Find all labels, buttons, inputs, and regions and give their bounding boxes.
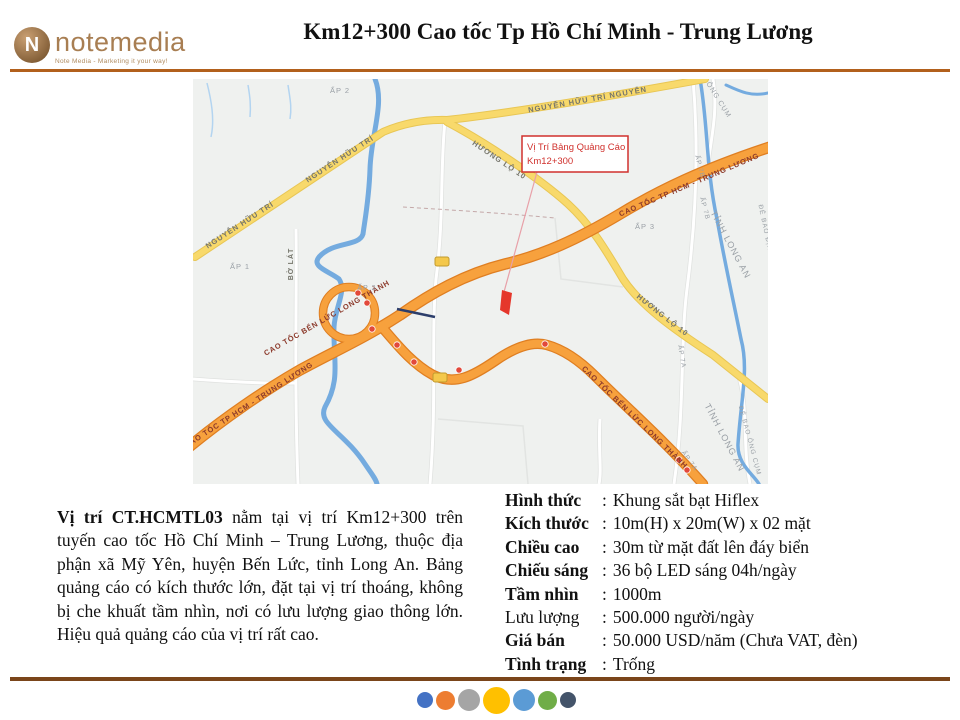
footer-dots bbox=[16, 686, 960, 714]
road-label-nguyen-huu-tri-top: NGUYỄN HỮU TRÍ NGUYỄN bbox=[527, 85, 647, 115]
creek-lines bbox=[207, 83, 291, 137]
spec-row: Kích thước:10m(H) x 20m(W) x 02 mặt bbox=[505, 512, 917, 535]
spec-colon: : bbox=[602, 536, 607, 559]
spec-value: 36 bộ LED sáng 04h/ngày bbox=[613, 559, 797, 582]
spec-colon: : bbox=[602, 512, 607, 535]
spec-row: Hình thức:Khung sắt bạt Hiflex bbox=[505, 489, 917, 512]
brand-logo: N notemedia Note Media - Marketing it yo… bbox=[14, 27, 186, 66]
highway-ben-luc-casing bbox=[381, 326, 703, 484]
spec-value: 30m từ mặt đất lên đáy biển bbox=[613, 536, 809, 559]
spec-value: Trống bbox=[613, 653, 655, 676]
location-map: NGUYỄN HỮU TRÍ NGUYỄN HỮU TRÍ NGUYỄN HỮU… bbox=[193, 79, 768, 484]
spec-label: Hình thức bbox=[505, 489, 602, 512]
location-code: Vị trí CT.HCMTL03 bbox=[57, 507, 223, 527]
road-label-bo-lat: BỜ LÁT bbox=[286, 248, 295, 281]
logo-text: notemedia Note Media - Marketing it your… bbox=[55, 27, 186, 66]
spec-value: 1000m bbox=[613, 583, 662, 606]
footer-dot bbox=[417, 692, 433, 708]
spec-row: Giá bán:50.000 USD/năm (Chưa VAT, đèn) bbox=[505, 629, 917, 652]
map-svg: NGUYỄN HỮU TRÍ NGUYỄN HỮU TRÍ NGUYỄN HỮU… bbox=[193, 79, 768, 484]
boundary-dashed-line bbox=[403, 207, 555, 218]
spec-colon: : bbox=[602, 489, 607, 512]
spec-value: 500.000 người/ngày bbox=[613, 606, 754, 629]
spec-label: Chiếu sáng bbox=[505, 559, 602, 582]
notemedia-monogram-icon: N bbox=[14, 27, 50, 63]
spec-list: Hình thức:Khung sắt bạt Hiflex Kích thướ… bbox=[505, 489, 917, 676]
billboard-marker bbox=[500, 290, 512, 315]
footer-dot bbox=[458, 689, 480, 711]
brand-tagline: Note Media - Marketing it your way! bbox=[55, 59, 186, 66]
footer-dot bbox=[513, 689, 535, 711]
spec-colon: : bbox=[602, 606, 607, 629]
road-label-huong-lo-10-2: HƯƠNG LỘ 10 bbox=[635, 292, 690, 338]
callout-line2: Km12+300 bbox=[527, 156, 573, 167]
spec-label: Lưu lượng bbox=[505, 606, 602, 629]
spec-label: Chiều cao bbox=[505, 536, 602, 559]
spec-row: Chiều cao:30m từ mặt đất lên đáy biển bbox=[505, 536, 917, 559]
spec-row: Chiếu sáng:36 bộ LED sáng 04h/ngày bbox=[505, 559, 917, 582]
callout-connector-line bbox=[504, 172, 537, 292]
spec-value: 50.000 USD/năm (Chưa VAT, đèn) bbox=[613, 629, 858, 652]
spec-colon: : bbox=[602, 559, 607, 582]
road-label-nguyen-huu-tri: NGUYỄN HỮU TRÍ bbox=[204, 200, 275, 251]
location-description-text: nằm tại vị trí Km12+300 trên tuyến cao t… bbox=[57, 507, 463, 645]
location-description: Vị trí CT.HCMTL03 nằm tại vị trí Km12+30… bbox=[57, 506, 463, 647]
area-label-ap3: ẤP 3 bbox=[635, 221, 655, 231]
highway-ben-luc bbox=[381, 326, 703, 484]
brand-name: notemedia bbox=[55, 29, 186, 56]
area-label-tinh-long-an: TỈNH LONG AN bbox=[709, 208, 754, 280]
spec-colon: : bbox=[602, 629, 607, 652]
highway-label-hcm-1: CAO TỐC TP HCM - TRUNG LƯƠNG bbox=[617, 150, 760, 218]
spec-row: Tình trạng:Trống bbox=[505, 653, 917, 676]
spec-label: Kích thước bbox=[505, 512, 602, 535]
callout-line1: Vị Trí Bảng Quảng Cáo bbox=[527, 142, 625, 153]
header-divider bbox=[10, 69, 950, 72]
road-label-de-bao-dinh: ĐÊ BAO ĐỊNH bbox=[757, 203, 768, 257]
spec-label: Tầm nhìn bbox=[505, 583, 602, 606]
spec-row: Tầm nhìn:1000m bbox=[505, 583, 917, 606]
page-title: Km12+300 Cao tốc Tp Hồ Chí Minh - Trung … bbox=[193, 19, 923, 45]
spec-label: Tình trạng bbox=[505, 653, 602, 676]
road-label-nguyen-huu-tri-2: NGUYỄN HỮU TRÍ bbox=[304, 134, 375, 185]
road-label-huong-lo-10: HƯƠNG LỘ 10 bbox=[471, 139, 528, 182]
spec-colon: : bbox=[602, 653, 607, 676]
area-label-ap7a: ẤP 7A bbox=[676, 344, 690, 369]
spec-value: 10m(H) x 20m(W) x 02 mặt bbox=[613, 512, 811, 535]
footer-dot bbox=[483, 687, 510, 714]
spec-row: Lưu lượng:500.000 người/ngày bbox=[505, 606, 917, 629]
spec-label: Giá bán bbox=[505, 629, 602, 652]
spec-value: Khung sắt bạt Hiflex bbox=[613, 489, 759, 512]
area-label-ap2b: ẤP 2 bbox=[357, 282, 376, 292]
area-label-ap2: ẤP 2 bbox=[330, 85, 350, 95]
callout-box: Vị Trí Bảng Quảng Cáo Km12+300 bbox=[522, 136, 628, 172]
footer-divider bbox=[10, 677, 950, 681]
highway-label-ben-luc-2: CAO TỐC BẾN LỨC LONG THÀNH bbox=[580, 363, 690, 470]
footer-dot bbox=[538, 691, 557, 710]
footer-dot bbox=[560, 692, 576, 708]
footer-dot bbox=[436, 691, 455, 710]
area-label-ap1: ẤP 1 bbox=[230, 261, 250, 271]
spec-colon: : bbox=[602, 583, 607, 606]
